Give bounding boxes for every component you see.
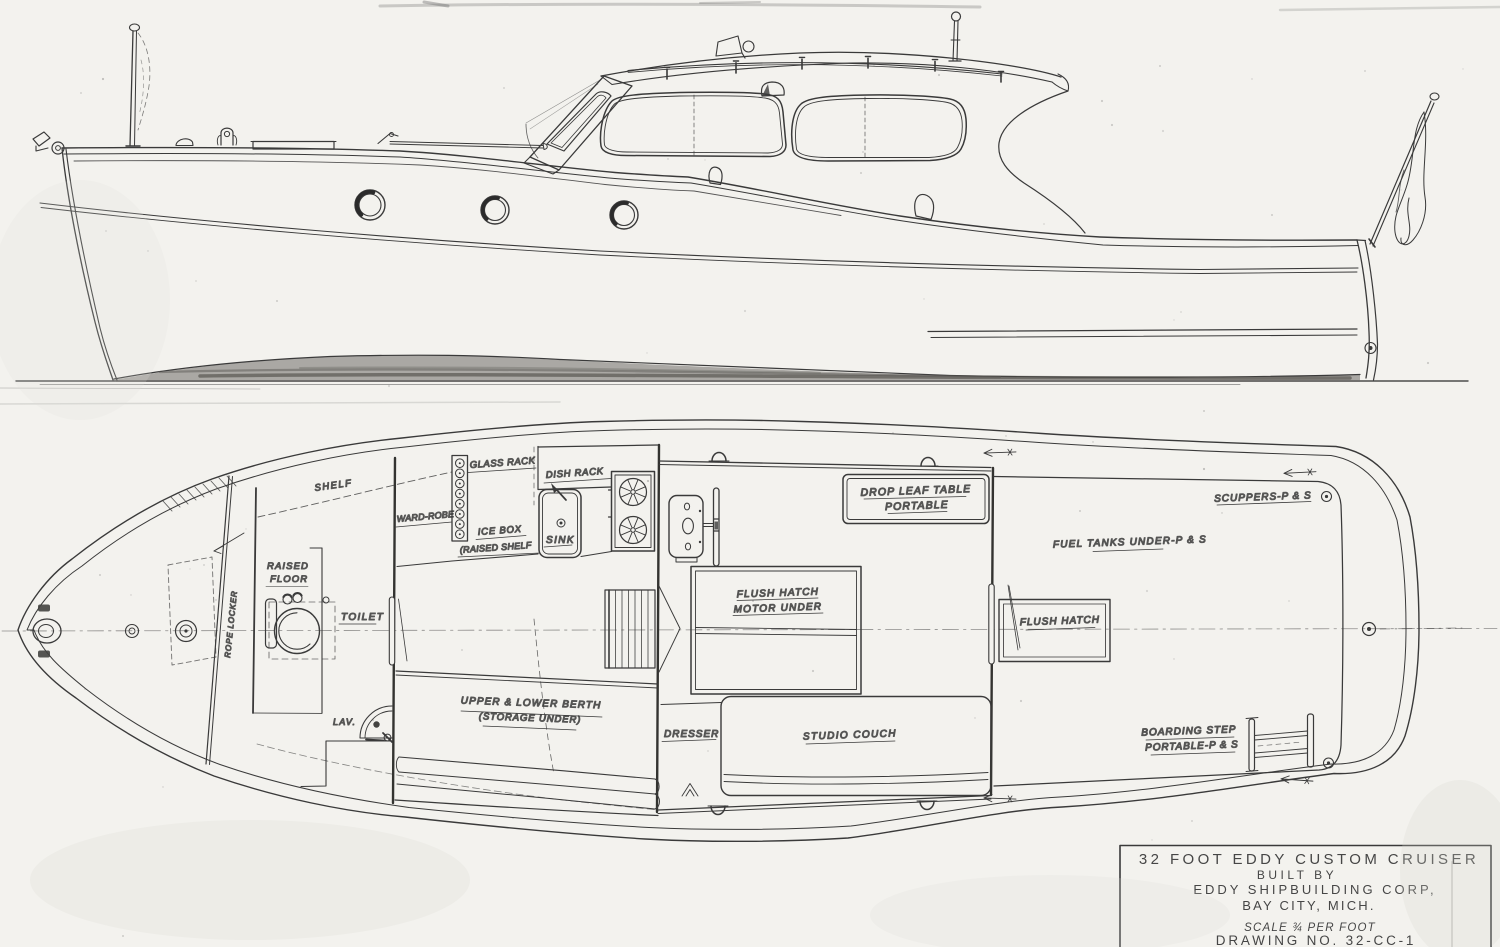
svg-text:RAISED: RAISED bbox=[267, 561, 309, 572]
svg-text:EDDY SHIPBUILDING CORP,: EDDY SHIPBUILDING CORP, bbox=[1193, 882, 1436, 897]
svg-text:LAV.: LAV. bbox=[333, 717, 356, 727]
svg-text:DRESSER: DRESSER bbox=[664, 729, 719, 740]
svg-text:BAY CITY, MICH.: BAY CITY, MICH. bbox=[1242, 898, 1375, 913]
svg-text:BUILT BY: BUILT BY bbox=[1257, 868, 1337, 882]
svg-text:PORTABLE: PORTABLE bbox=[885, 499, 949, 513]
svg-text:TOILET: TOILET bbox=[341, 612, 384, 623]
svg-text:DRAWING NO. 32-CC-1: DRAWING NO. 32-CC-1 bbox=[1216, 933, 1416, 947]
svg-text:SINK: SINK bbox=[546, 535, 575, 546]
svg-text:FLOOR: FLOOR bbox=[270, 574, 308, 585]
